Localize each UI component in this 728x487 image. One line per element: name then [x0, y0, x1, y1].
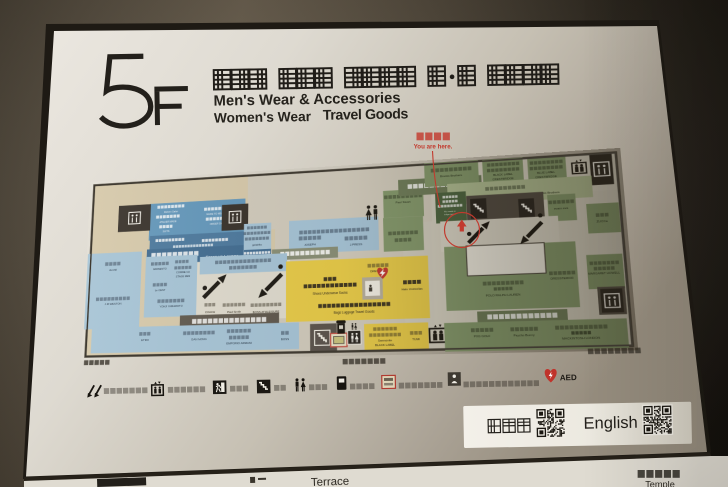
svg-text:Women's Wear: Women's Wear — [214, 109, 312, 126]
svg-text:Travel Goods: Travel Goods — [323, 106, 409, 123]
